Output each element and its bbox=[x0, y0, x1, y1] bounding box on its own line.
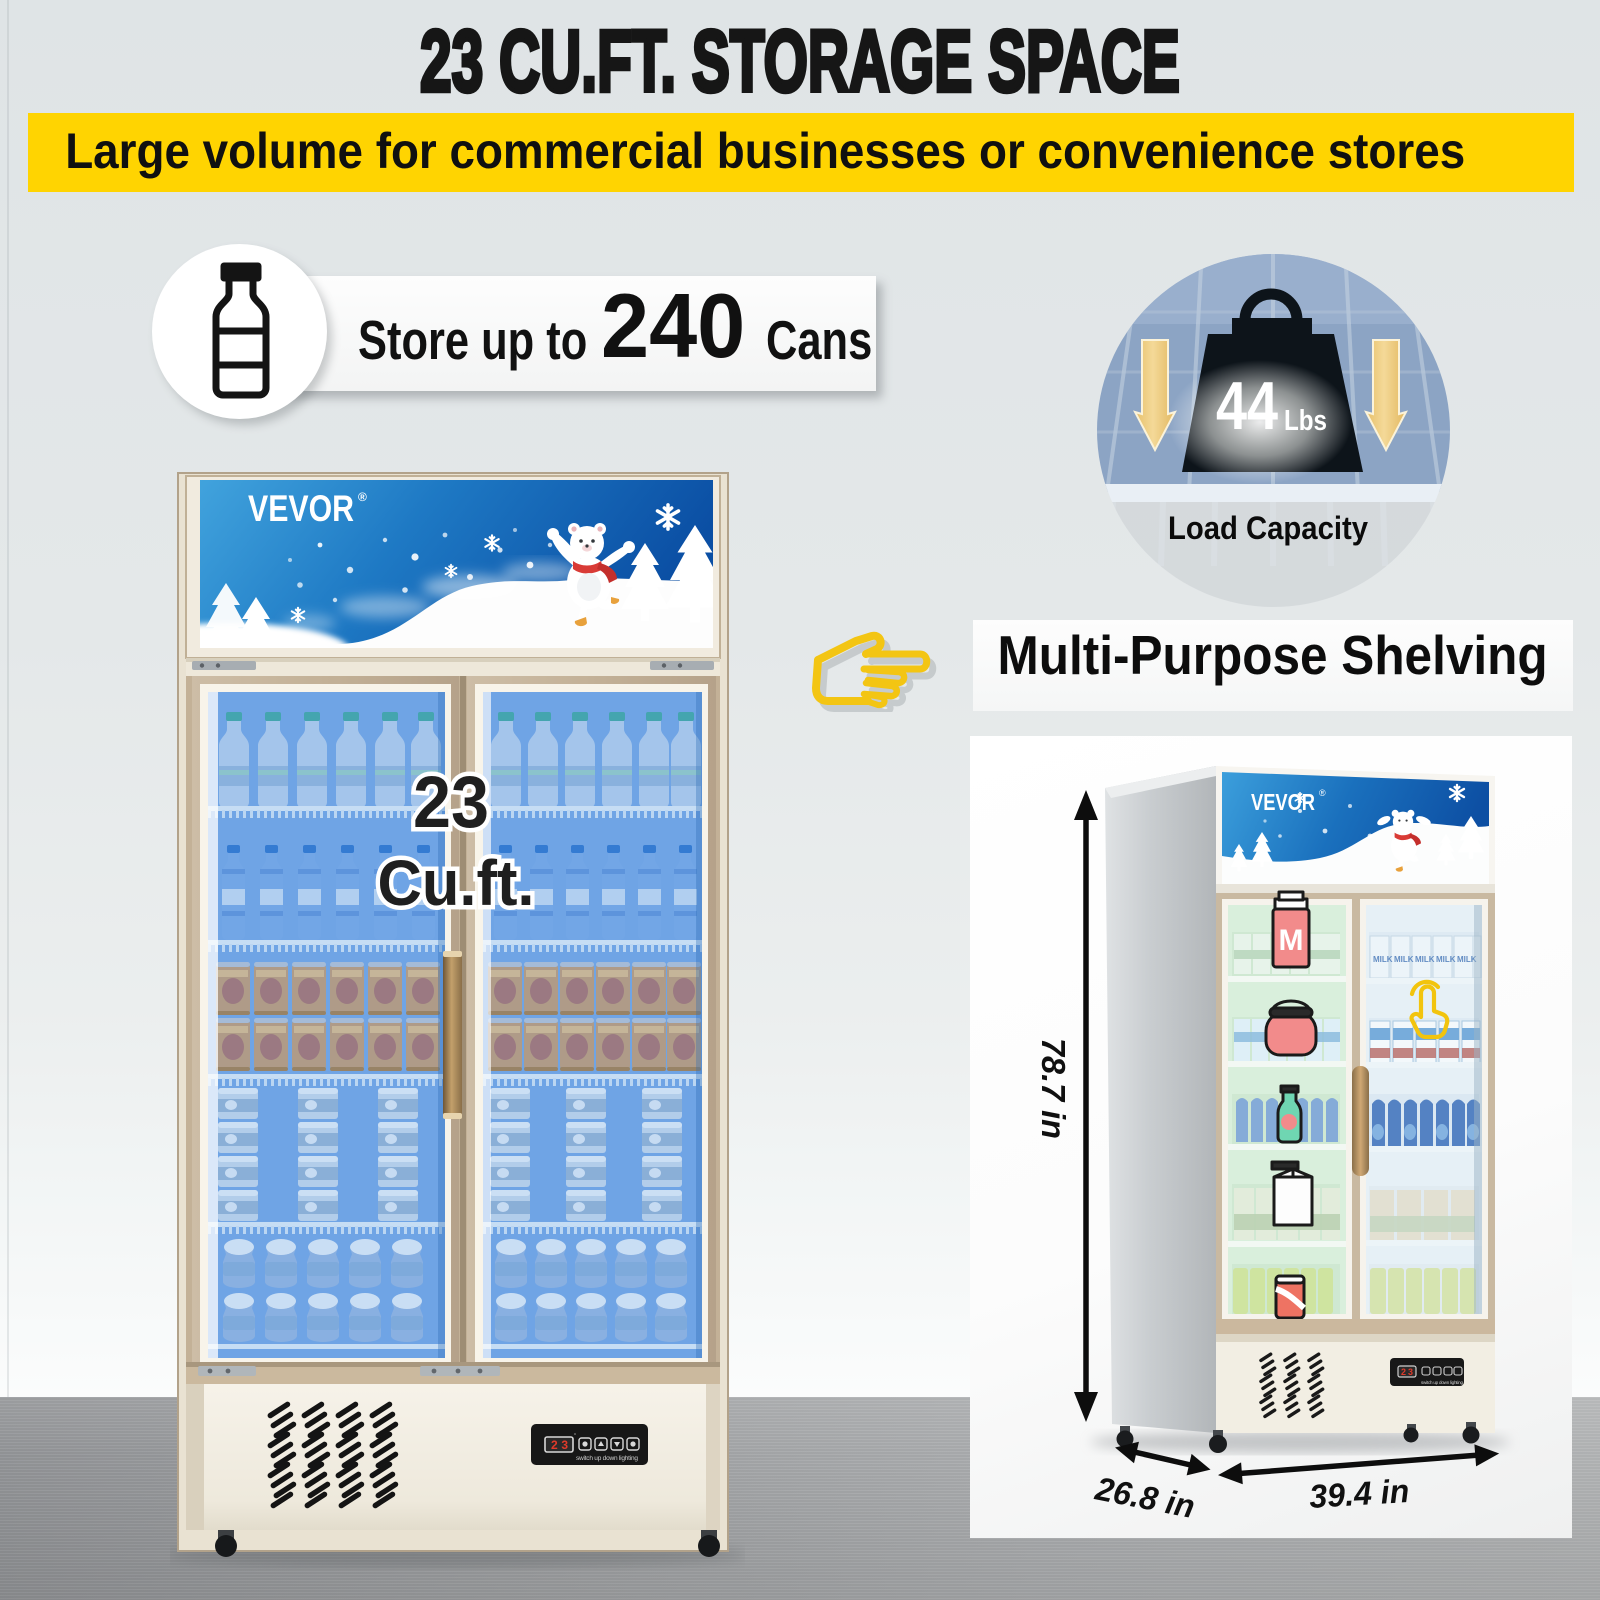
svg-text:VEVOR: VEVOR bbox=[1251, 789, 1315, 815]
svg-text:Lbs: Lbs bbox=[1284, 405, 1327, 437]
svg-text:26.8 in: 26.8 in bbox=[1092, 1469, 1198, 1525]
svg-text:°: ° bbox=[574, 1433, 576, 1439]
svg-text:switch up down lighting: switch up down lighting bbox=[1421, 1380, 1463, 1385]
svg-text:78.7 in: 78.7 in bbox=[1035, 1038, 1072, 1139]
svg-text:Cu.ft.: Cu.ft. bbox=[378, 847, 535, 919]
svg-text:23: 23 bbox=[1401, 1367, 1413, 1377]
svg-text:Load Capacity: Load Capacity bbox=[1168, 510, 1368, 546]
svg-text:switch up down lighting: switch up down lighting bbox=[576, 1455, 638, 1462]
svg-text:M: M bbox=[1279, 924, 1304, 957]
svg-text:44: 44 bbox=[1216, 368, 1278, 444]
svg-text:39.4 in: 39.4 in bbox=[1308, 1472, 1410, 1515]
svg-text:®: ® bbox=[358, 490, 367, 504]
svg-text:®: ® bbox=[1319, 788, 1326, 798]
svg-text:VEVOR: VEVOR bbox=[248, 488, 354, 529]
svg-text:23: 23 bbox=[413, 762, 489, 843]
